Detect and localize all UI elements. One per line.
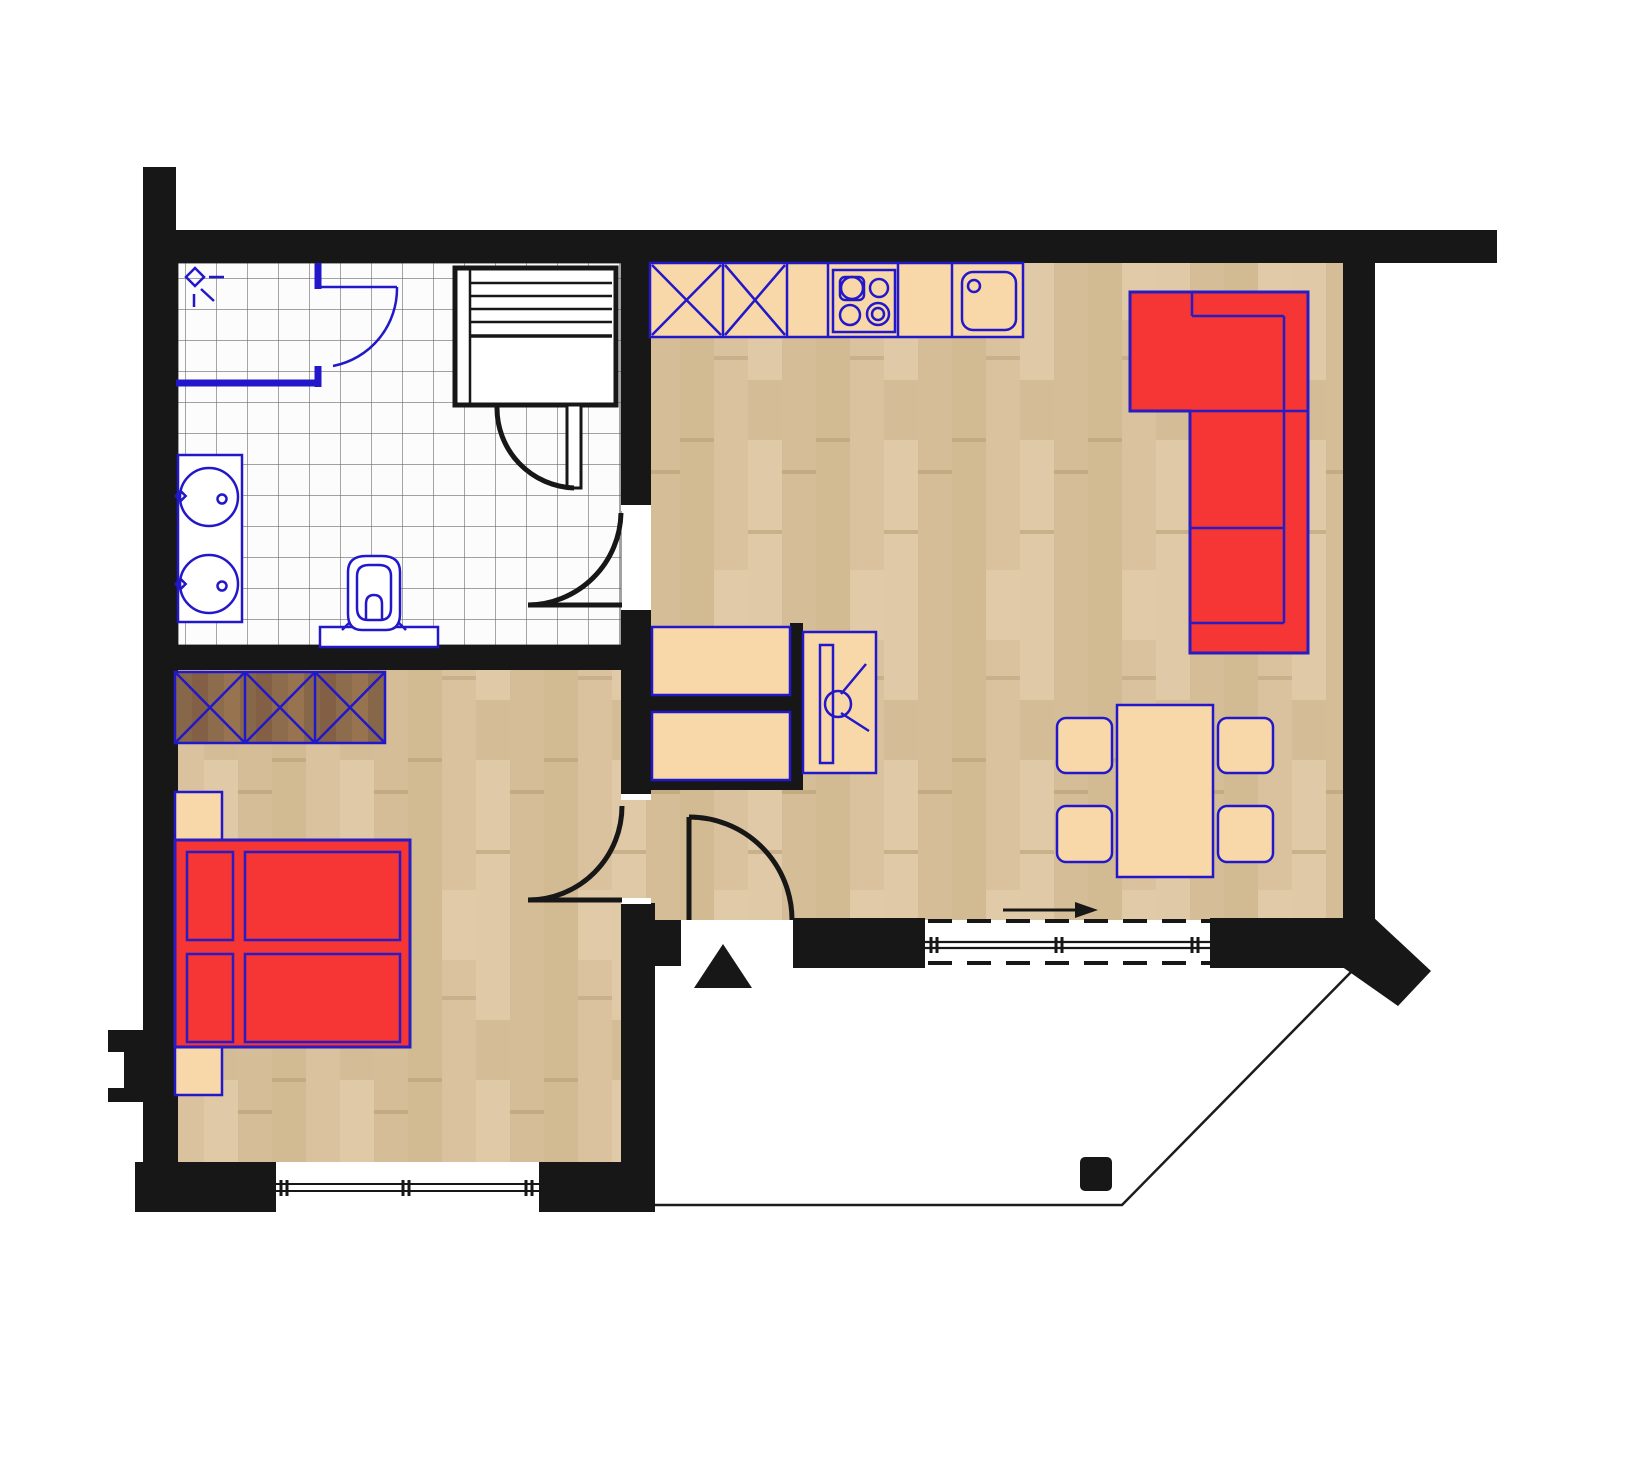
dining-chair — [1057, 806, 1112, 862]
double-bed — [175, 840, 410, 1047]
wall-left — [143, 230, 178, 1165]
bedroom-furniture — [175, 672, 410, 1095]
wall-living-bottom-left — [621, 920, 681, 966]
wall-hall-middle — [621, 610, 651, 796]
wardrobe — [175, 672, 385, 743]
floor-plan-canvas — [0, 0, 1637, 1471]
washbasin-counter — [176, 455, 242, 622]
wall-bedroom-bottom-right — [539, 1162, 655, 1212]
wall-right — [1343, 263, 1375, 920]
kitchen-counter — [650, 263, 1023, 337]
terrace-post — [1080, 1157, 1112, 1191]
hall-unit — [650, 623, 876, 790]
slider-ticks — [931, 937, 1198, 953]
sauna-door-leaf — [567, 405, 581, 488]
floor-plan-svg — [0, 0, 1637, 1471]
bedroom-doorway-floor — [621, 800, 655, 899]
wall-left-notch — [108, 1052, 124, 1088]
dining-chair — [1218, 806, 1273, 862]
washbasin-icon — [180, 468, 238, 526]
nightstand-top — [175, 792, 222, 840]
wall-living-bottom-mid — [793, 918, 925, 968]
hall-cabinet-top — [652, 627, 790, 695]
entrance-triangle-marker — [694, 944, 752, 988]
wall-bathroom-bedroom — [143, 645, 621, 670]
terrace — [655, 944, 1355, 1205]
dining-table — [1117, 705, 1213, 877]
hall-unit-partition — [650, 695, 803, 712]
tv-unit — [803, 632, 876, 773]
bedroom-window — [276, 1162, 539, 1212]
wall-top-left-stub — [143, 167, 176, 237]
washbasin-icon — [180, 555, 238, 613]
hall-unit-partition — [650, 780, 803, 790]
dining-chair — [1218, 718, 1273, 773]
wall-top — [143, 230, 1497, 263]
hall-cabinet-bottom — [652, 712, 790, 780]
wall-hall-upper — [621, 263, 651, 506]
wall-bedroom-bottom-left — [135, 1162, 276, 1212]
nightstand-bottom — [175, 1047, 222, 1095]
dining-chair — [1057, 718, 1112, 773]
hall-unit-partition — [790, 623, 803, 790]
terrace-boundary-line — [655, 968, 1355, 1205]
slider-glass — [925, 942, 1210, 948]
